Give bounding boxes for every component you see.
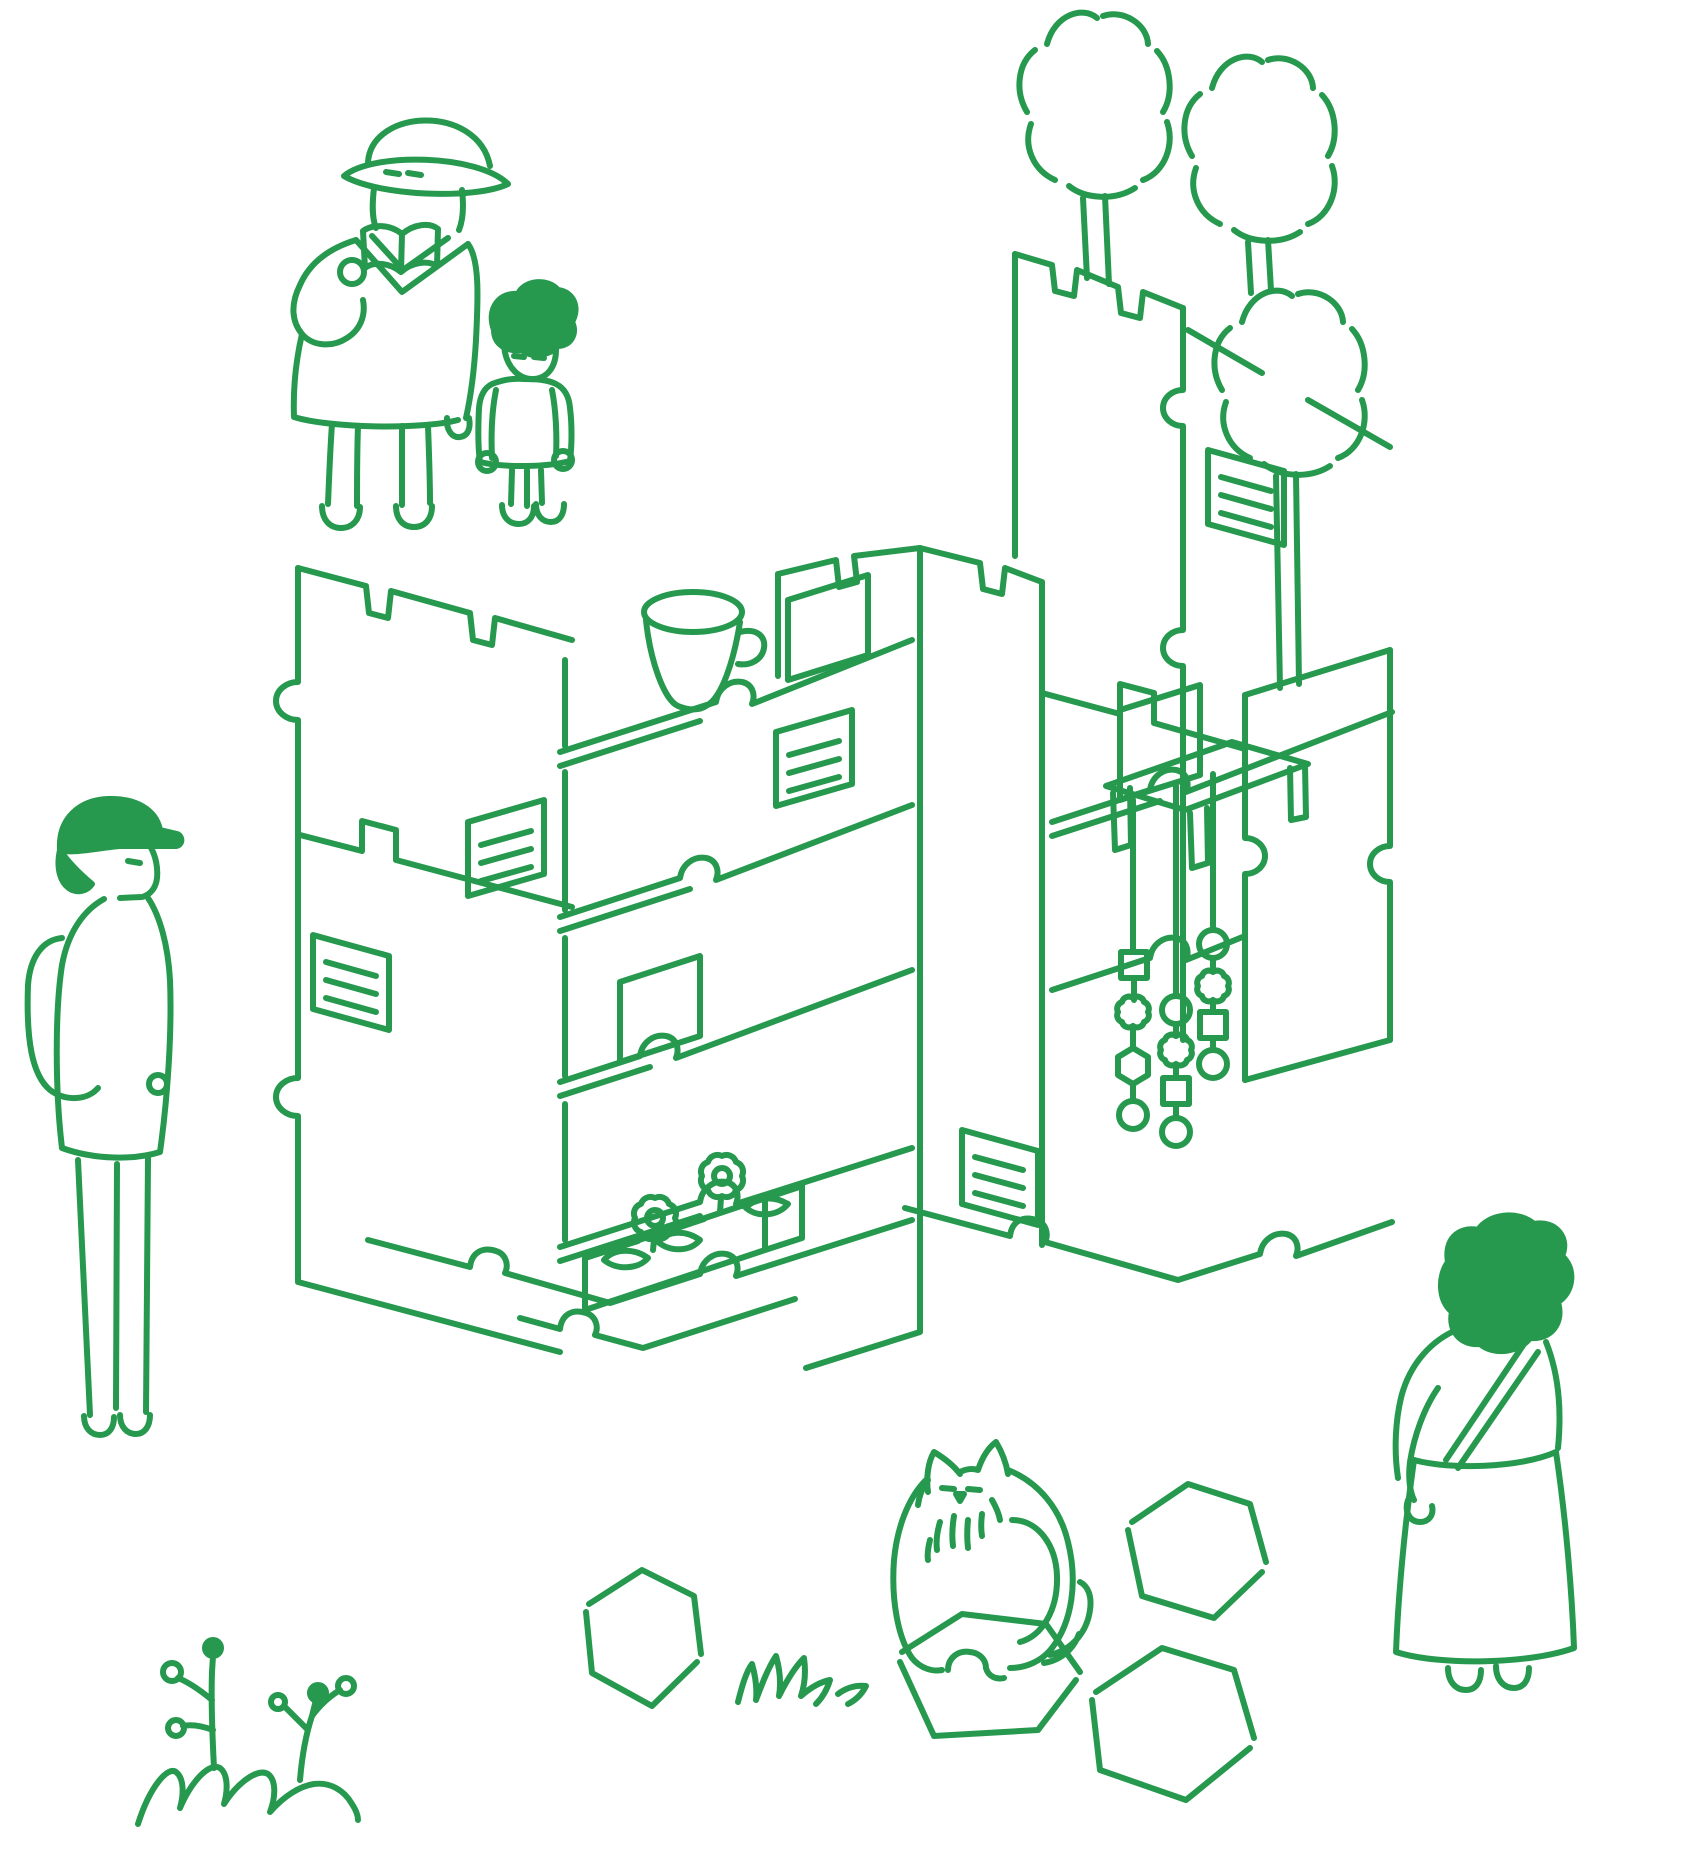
illustration: Green line-art illustration: park scene … [0,0,1704,1864]
cat-paws [948,1652,1004,1679]
left-wall-panel [276,568,572,1352]
shoes [322,506,432,528]
tree-2 [1184,57,1334,293]
eyes [386,172,421,175]
hand [149,1075,167,1093]
shoes [84,1415,150,1435]
bent-arm [293,240,363,344]
cap [60,799,182,851]
hand [340,260,364,284]
tree-3 [1214,291,1364,688]
sprout-plant [138,1640,358,1824]
cat-eyes [942,1488,980,1490]
child-legs [511,470,542,506]
note [776,710,852,806]
woman-hair [1441,1215,1571,1351]
cat-nose [956,1494,964,1501]
eye [128,861,140,863]
tree-1 [1019,13,1169,284]
hiker [28,799,182,1435]
waist [1414,1452,1556,1466]
stone-right-lower [1092,1648,1254,1800]
note [962,1130,1038,1225]
ground [138,1484,1266,1824]
legs [328,424,430,506]
jacket [57,898,171,1158]
trousers [78,1158,148,1415]
mound [138,1767,358,1824]
left-bay-shelves [560,640,912,1261]
woman [1396,1215,1574,1690]
right-bay-shelves [1052,712,1392,990]
stone-left [586,1570,701,1706]
woman-eye [1455,1276,1464,1278]
floor-panels [368,1208,1392,1348]
hair [59,850,93,891]
table [1106,742,1308,868]
right-wall-panel [1245,650,1390,1080]
note [468,800,544,896]
bud-filled [205,1640,221,1656]
trees [1019,13,1364,688]
cat-ears [927,1442,1008,1492]
face [120,846,157,898]
hanging-mobiles [1117,774,1229,1146]
figures [28,121,1574,1691]
stone-right-upper [1128,1484,1266,1618]
bag-strap [1446,1344,1538,1468]
cat-chest-fur [928,1500,1000,1560]
sprout-stems [284,1690,340,1780]
child [478,282,576,524]
grass-tuft [738,1656,866,1704]
back-right-wall-panel [1015,254,1390,1040]
bud-filled [310,1685,326,1701]
skirt [1396,1452,1574,1661]
note [313,935,389,1030]
reading-adult [293,121,508,529]
note [1208,450,1284,545]
woman-shoes [1448,1666,1529,1690]
cup [644,592,764,709]
flower-planter [585,1155,802,1310]
book [363,225,438,272]
child-shoes [502,504,564,524]
